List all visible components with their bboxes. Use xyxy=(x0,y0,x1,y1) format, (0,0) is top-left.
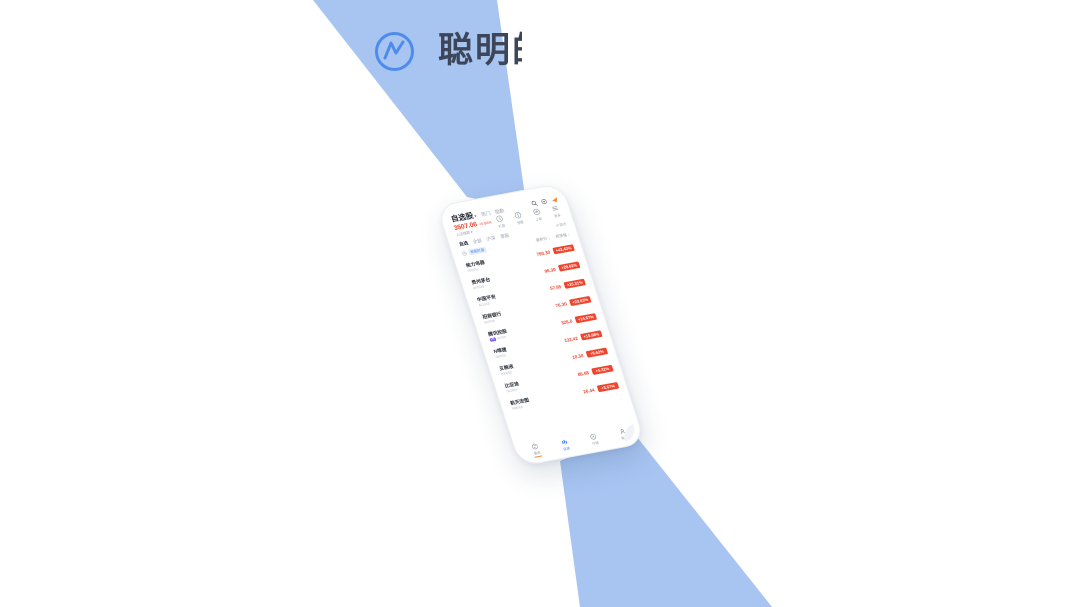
change-badge: +14.67% xyxy=(575,313,598,323)
change-column-header[interactable]: 按涨幅 ↓ xyxy=(555,231,571,239)
brand-icon xyxy=(373,30,416,73)
feature-more[interactable]: 更多 xyxy=(548,204,564,220)
filter-cn[interactable]: 沪深 xyxy=(485,234,496,242)
title-caret-icon[interactable]: ▾ xyxy=(474,214,477,219)
stock-price: 76.30 xyxy=(525,300,570,313)
promo-icon[interactable] xyxy=(550,196,559,204)
stock-code: 00700 xyxy=(497,335,507,340)
stock-price: 57.65 xyxy=(520,283,565,296)
alert-icon xyxy=(514,211,523,219)
brand-logo: 聪明的 xyxy=(373,28,522,74)
stock-code: 688066 xyxy=(512,405,524,410)
record-icon[interactable] xyxy=(540,198,548,205)
stock-code: 002594 xyxy=(506,388,518,393)
filter-watchlist[interactable]: 自选 xyxy=(458,239,469,247)
bottom-band xyxy=(560,432,772,607)
more-icon xyxy=(551,204,560,212)
notice-ellipsis[interactable]: ··· xyxy=(487,246,492,251)
stock-price: 10.30 xyxy=(542,352,587,365)
ip-location-label: IP属地 xyxy=(555,222,567,229)
stock-price: 96.30 xyxy=(514,266,559,279)
stock-price: 326.6 xyxy=(531,318,576,331)
change-badge: +42.43% xyxy=(552,244,575,254)
tab-market[interactable]: 行情 xyxy=(584,432,604,447)
feature-alert[interactable]: 预警 xyxy=(511,211,527,227)
filter-hk[interactable]: 港股 xyxy=(499,232,510,240)
new-icon xyxy=(532,208,541,216)
stock-code: 688153 xyxy=(495,354,507,359)
stock-code: 600519 xyxy=(473,285,485,290)
tab-watchlist[interactable]: 自选 xyxy=(555,437,575,452)
filter-all[interactable]: 全部 xyxy=(472,237,483,245)
notice-clock-icon xyxy=(462,251,468,256)
brand-text: 聪明的 xyxy=(438,28,522,74)
page: 聪明的 自选股 ▾ 热门 指数 xyxy=(0,0,1079,607)
change-badge: +22.63% xyxy=(569,296,592,306)
price-column-header[interactable]: 最新价 ↓ xyxy=(535,235,551,243)
stock-price: 790.30 xyxy=(509,249,554,262)
feature-new[interactable]: 上新 xyxy=(530,207,546,223)
search-icon[interactable] xyxy=(530,200,538,207)
stock-code: 601318 xyxy=(478,302,490,307)
change-badge: +10.68% xyxy=(580,330,603,340)
market-tag: HK xyxy=(490,337,497,341)
stock-price: 26.44 xyxy=(553,387,598,400)
stock-price: 86.68 xyxy=(548,369,593,382)
stock-code: 000858 xyxy=(501,371,513,376)
stock-code: 600036 xyxy=(484,319,496,324)
tab-news[interactable]: 要闻 xyxy=(526,442,547,459)
watch-icon xyxy=(495,215,504,223)
change-badge: +29.62% xyxy=(558,261,581,271)
feature-watch[interactable]: 盯盘 xyxy=(493,214,509,230)
stock-price: 132.42 xyxy=(536,335,581,348)
stock-code: 000651 xyxy=(467,268,479,273)
change-badge: +8.62% xyxy=(586,348,609,358)
tab-news-underline xyxy=(534,455,542,457)
change-badge: +25.31% xyxy=(563,279,586,289)
change-badge: +5.31% xyxy=(591,365,614,375)
change-badge: +3.57% xyxy=(597,382,620,392)
